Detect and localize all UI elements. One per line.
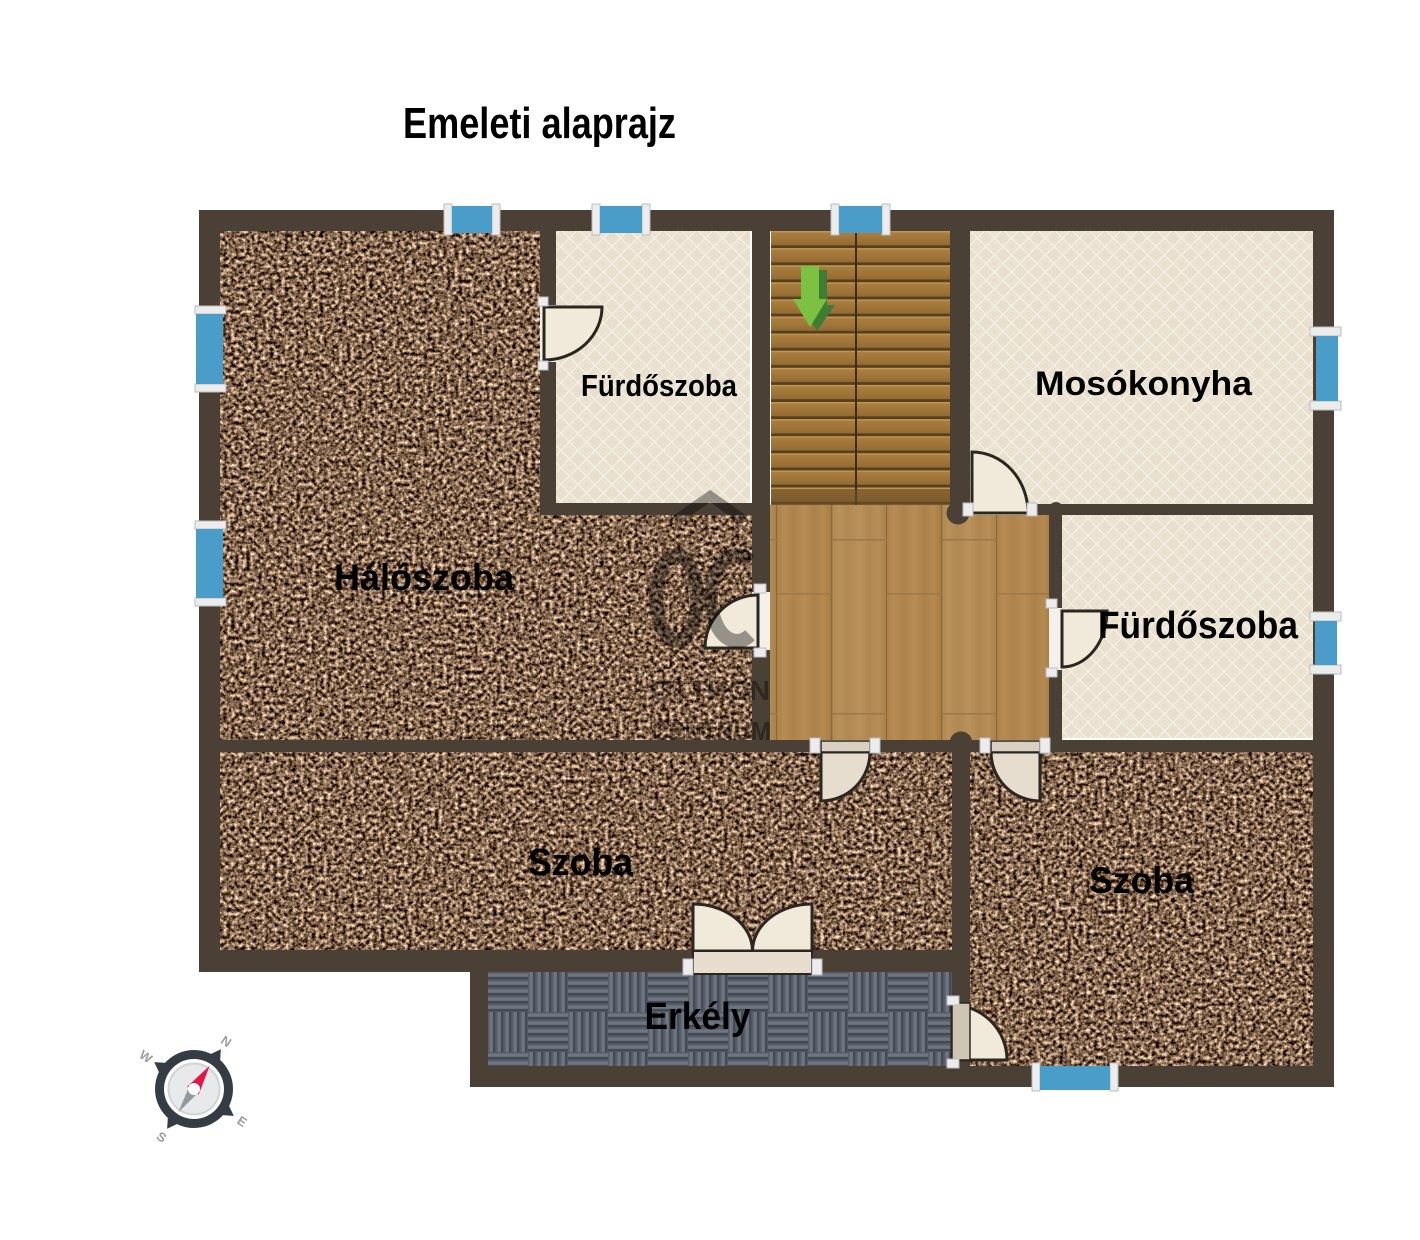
svg-text:Fürdőszoba: Fürdőszoba bbox=[581, 368, 738, 403]
svg-text:Fürdőszoba: Fürdőszoba bbox=[1098, 605, 1299, 647]
svg-text:Mosókonyha: Mosókonyha bbox=[1035, 365, 1253, 403]
svg-text:Emeleti alaprajz: Emeleti alaprajz bbox=[403, 99, 676, 148]
svg-text:Szoba: Szoba bbox=[1089, 860, 1194, 901]
svg-text:Erkély: Erkély bbox=[645, 996, 751, 1038]
svg-text:OTTHON: OTTHON bbox=[650, 675, 770, 706]
svg-text:CENTRUM: CENTRUM bbox=[651, 716, 771, 746]
svg-text:Hálószoba: Hálószoba bbox=[334, 557, 514, 598]
svg-text:Szoba: Szoba bbox=[528, 842, 634, 884]
